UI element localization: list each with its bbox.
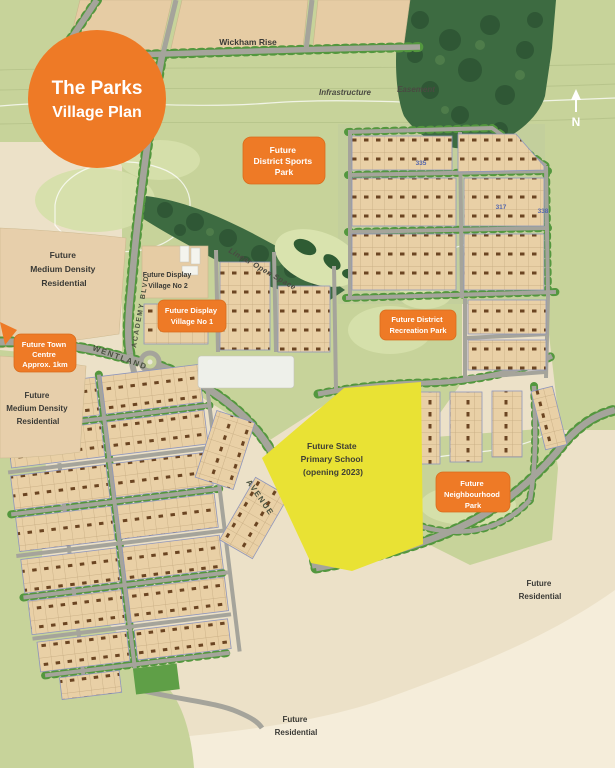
label-line: Village No 1	[171, 317, 213, 326]
label-line: Future State	[307, 441, 357, 451]
label-line: Future Display	[165, 306, 218, 315]
village-plan-svg: Wickham Rise Infrastructure Easement Fut…	[0, 0, 615, 768]
title-badge: The Parks Village Plan	[28, 30, 166, 168]
badge-title: The Parks	[52, 78, 143, 99]
recreation-park-callout: Future District Recreation Park	[380, 310, 456, 340]
label-line: (opening 2023)	[303, 467, 363, 477]
label-line: Future Town	[22, 340, 67, 349]
lot-block	[352, 234, 456, 290]
label-line: Park	[275, 167, 294, 177]
village-plan-map: Wickham Rise Infrastructure Easement Fut…	[0, 0, 615, 768]
label-line: Residential	[41, 278, 86, 288]
lot-block	[220, 262, 270, 350]
label-line: Future	[526, 579, 551, 588]
label-line: Future	[282, 715, 307, 724]
stage-number: 335	[416, 160, 427, 167]
label-line: Approx. 1km	[22, 360, 68, 369]
display-building	[191, 248, 200, 264]
lot-block	[468, 340, 546, 370]
label-line: Primary School	[301, 454, 363, 464]
compass-n-label: N	[572, 115, 581, 129]
label-line: Future	[460, 479, 483, 488]
label-line: Recreation Park	[389, 326, 447, 335]
infrastructure-label: Infrastructure	[319, 88, 372, 97]
label-line: Future	[24, 391, 49, 400]
label-line: Future District	[391, 315, 443, 324]
wickham-rise-label: Wickham Rise	[219, 37, 277, 47]
stage-number: 317	[496, 204, 507, 211]
display-building	[180, 246, 189, 262]
medium-density-area-1	[0, 228, 126, 348]
display-village-1-callout: Future Display Village No 1	[158, 300, 226, 332]
stage-number: 338	[538, 208, 549, 215]
label-line: Residential	[275, 728, 318, 737]
label-line: Medium Density	[6, 404, 68, 413]
lot-block	[464, 178, 544, 226]
label-line: Park	[465, 501, 482, 510]
lot-block	[492, 391, 522, 457]
easement-label: Easement	[397, 85, 435, 94]
green-patch	[133, 663, 180, 694]
sales-pad	[198, 356, 294, 388]
ne-street-right	[546, 166, 548, 296]
label-line: District Sports	[254, 156, 313, 166]
lot-block	[468, 300, 546, 334]
label-line: Medium Density	[30, 264, 95, 274]
label-line: Neighbourhood	[444, 490, 500, 499]
label-line: Residential	[17, 417, 60, 426]
neighbourhood-park-callout: Future Neighbourhood Park	[436, 472, 510, 512]
lot-block	[352, 136, 452, 170]
lot-block	[278, 286, 330, 352]
lot-block	[450, 392, 482, 462]
label-line: Residential	[519, 592, 562, 601]
school-label: Future State Primary School (opening 202…	[301, 441, 366, 477]
badge-subtitle: Village Plan	[52, 104, 142, 121]
label-line: Future	[270, 145, 297, 155]
sports-park-callout: Future District Sports Park	[243, 137, 325, 184]
label-line: Village No 2	[148, 283, 188, 290]
label-line: Centre	[32, 350, 56, 359]
lot-block	[352, 178, 456, 226]
north-parcel	[313, 0, 410, 47]
lot-block	[464, 234, 544, 290]
label-line: Future	[50, 250, 77, 260]
